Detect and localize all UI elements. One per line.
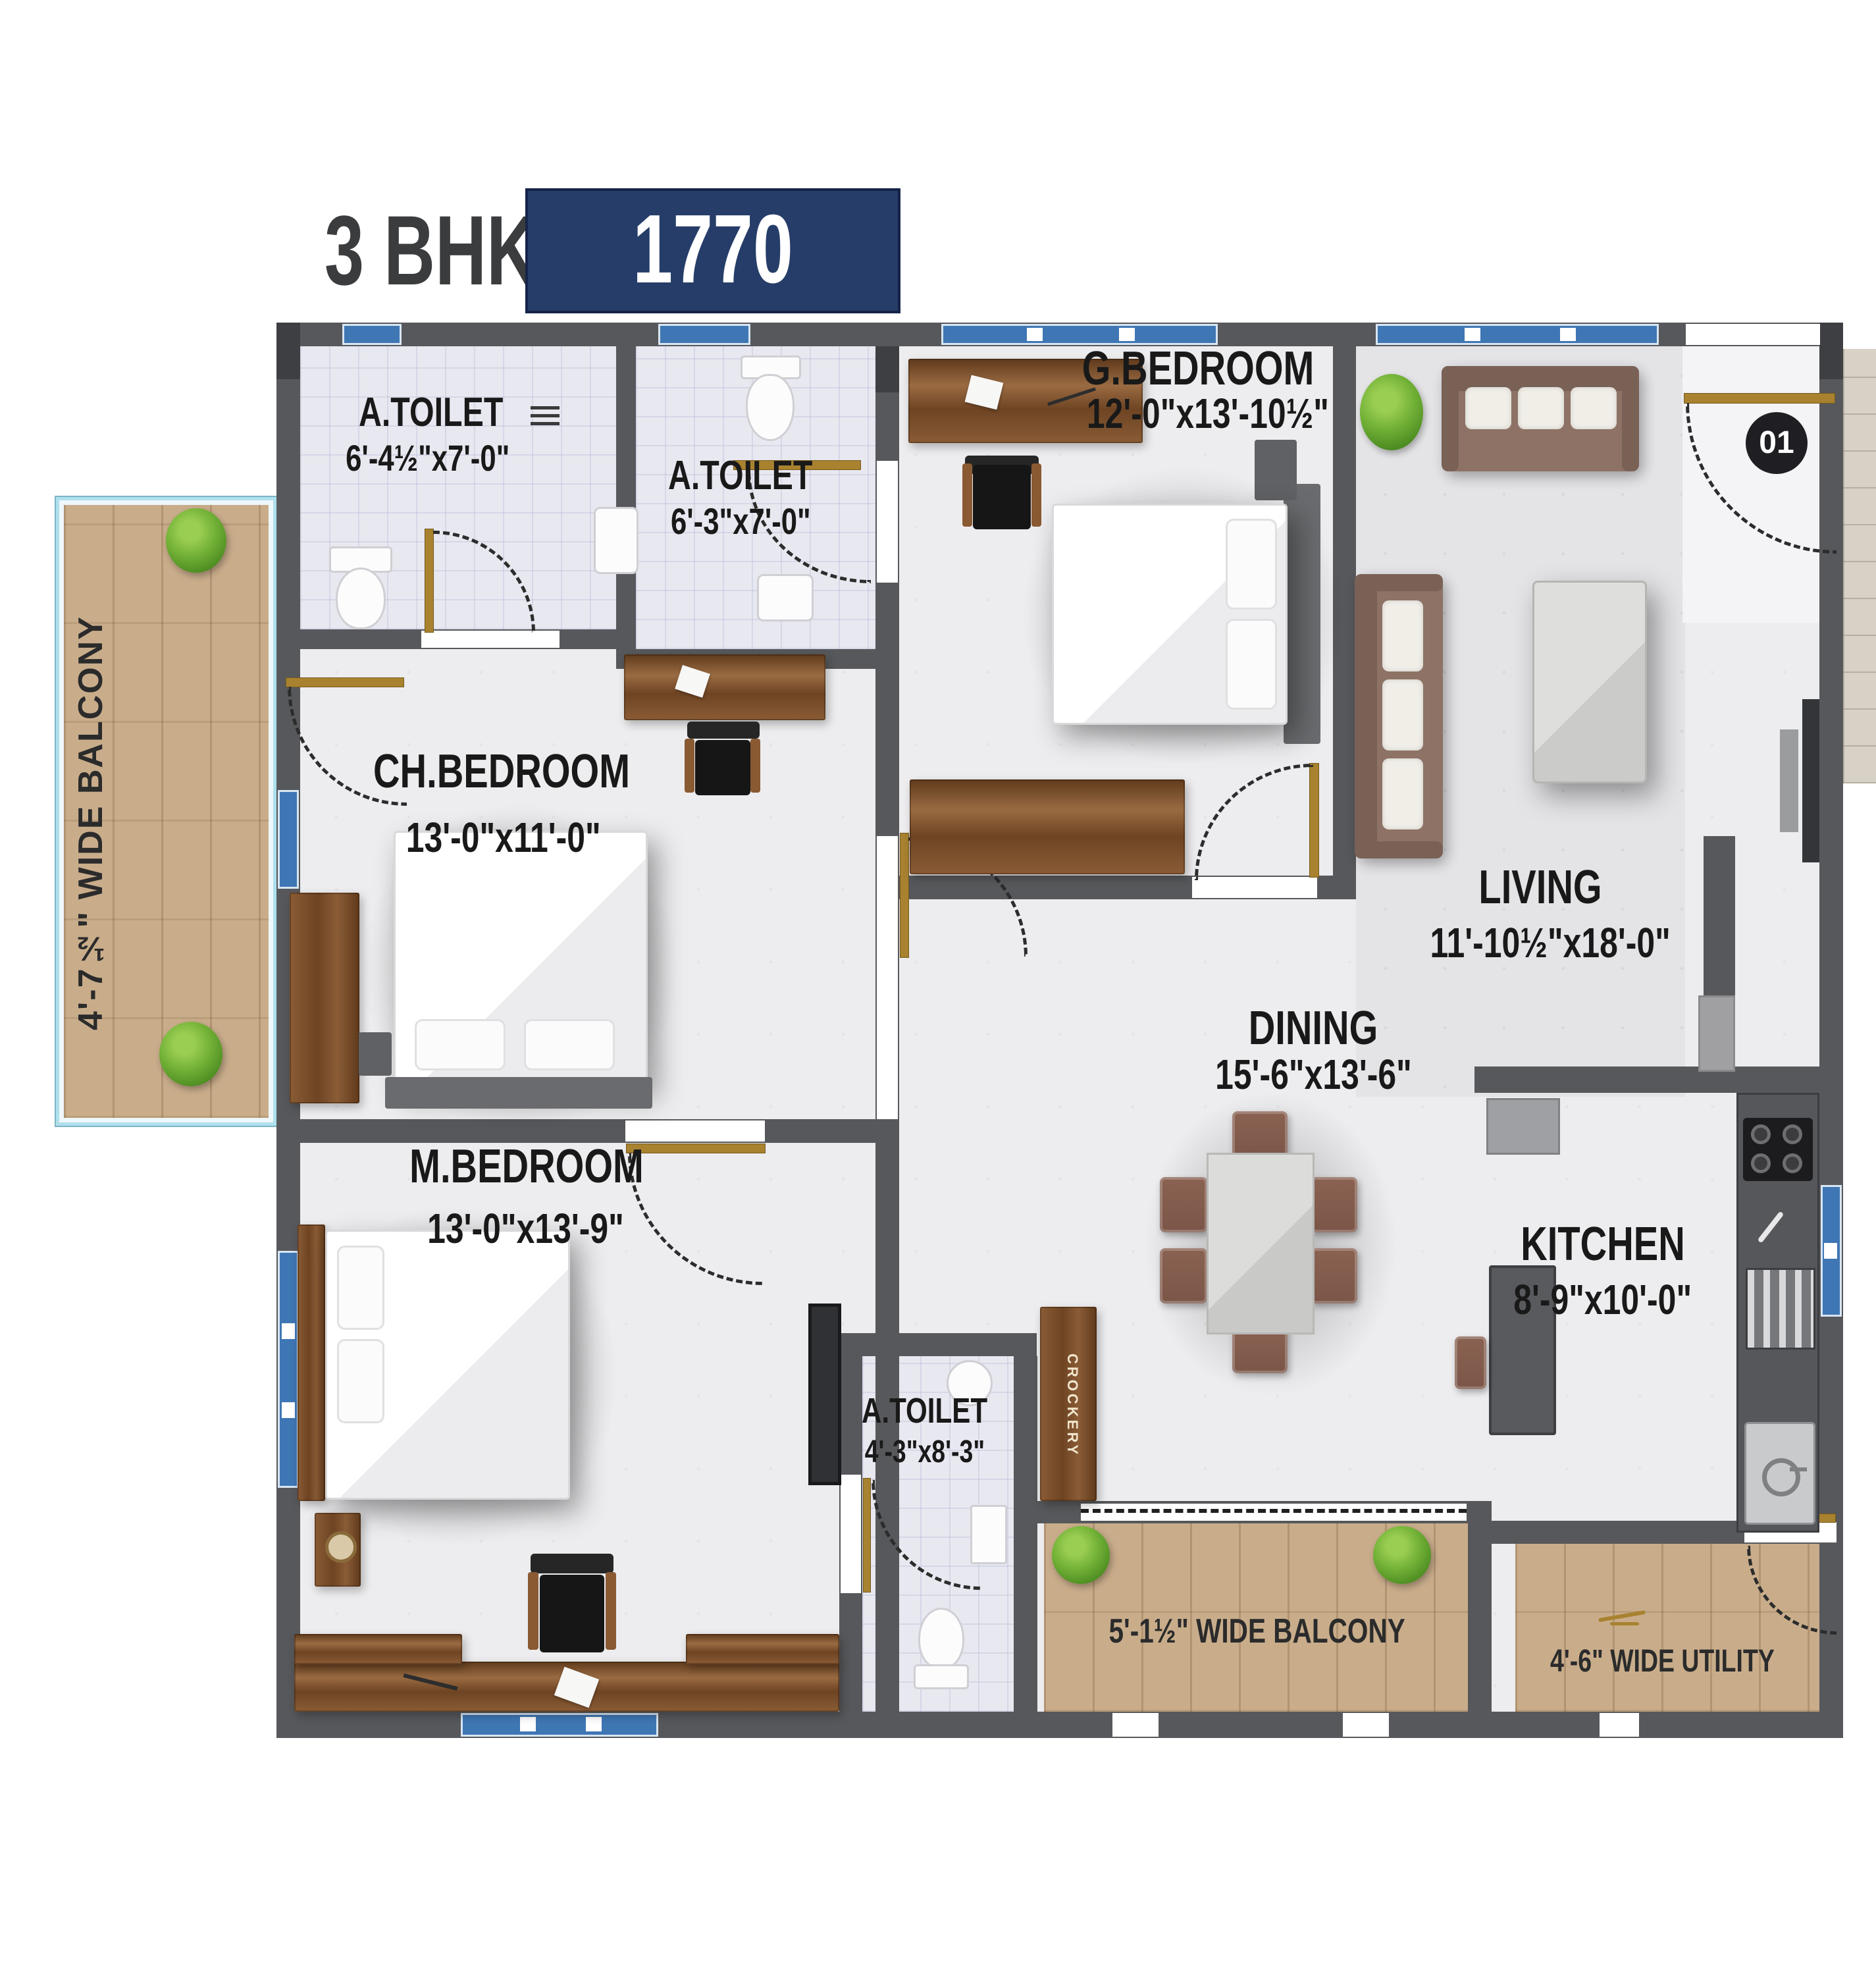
- window-pane: [1119, 328, 1135, 341]
- wardrobe: [290, 893, 359, 1103]
- burner-icon: [1751, 1153, 1771, 1173]
- room-label: DINING: [1149, 1005, 1478, 1052]
- balcony-label: 5'-1½" WIDE BALCONY: [1053, 1612, 1461, 1651]
- room-label: KITCHEN: [1438, 1221, 1767, 1268]
- toilet1-door-leaf: [425, 529, 433, 632]
- room-label: M.BEDROOM: [362, 1143, 691, 1190]
- window-pane: [1465, 328, 1480, 341]
- room-label: G.BEDROOM: [1033, 345, 1363, 392]
- window-pane: [586, 1717, 602, 1731]
- sofa-cushion: [1382, 600, 1423, 671]
- office-chair: [687, 722, 760, 739]
- page-title-bhk: 3 BHK: [283, 194, 500, 306]
- room-label: A.TOILET: [267, 392, 596, 433]
- room-dims: 8'-9"x10'-0": [1438, 1278, 1767, 1321]
- room-dims: 13'-0"x13'-9": [361, 1207, 690, 1250]
- wall: [1468, 1501, 1492, 1712]
- room-label: A.TOILET: [767, 1390, 1083, 1431]
- railing-gap: [1112, 1713, 1159, 1737]
- wardrobe: [624, 654, 825, 720]
- tv-unit: [1802, 699, 1819, 862]
- faucet-icon: [1790, 1467, 1807, 1471]
- utility-label: 4'-6" WIDE UTILITY: [1501, 1643, 1823, 1679]
- pillow: [524, 1019, 615, 1070]
- railing-gap: [1600, 1713, 1639, 1737]
- room-dims: 12'-0"x13'-10½": [1043, 392, 1372, 434]
- chair-arm: [528, 1572, 538, 1650]
- plant-icon: [166, 508, 226, 573]
- dining-chair: [1310, 1248, 1357, 1303]
- office-chair: [540, 1575, 604, 1652]
- sofa-cushion: [1518, 387, 1564, 429]
- chair-arm: [685, 739, 694, 793]
- burner-icon: [1783, 1153, 1802, 1173]
- pillow: [415, 1019, 506, 1070]
- room-dims: 15'-6"x13'-6": [1149, 1053, 1478, 1095]
- shelf-icon: [970, 1505, 1007, 1564]
- washbasin-icon: [757, 574, 814, 621]
- bed-headboard: [385, 1077, 652, 1109]
- cabinet: [1698, 995, 1735, 1072]
- room-dims: 11'-10½"x18'-0": [1386, 922, 1715, 964]
- unit-number-badge: 01: [1746, 412, 1808, 474]
- wall-cap: [1819, 323, 1843, 379]
- room-dims: 13'-0"x11'-0": [339, 816, 668, 858]
- wardrobe: [910, 779, 1185, 874]
- window-pane: [1560, 328, 1576, 341]
- sofa-cushion: [1382, 758, 1423, 829]
- corridor-tiles: [1843, 349, 1876, 783]
- burner-icon: [1751, 1124, 1771, 1144]
- sink-basin-icon: [1762, 1458, 1800, 1496]
- pipe-icon: [1610, 1622, 1639, 1625]
- window: [1821, 1185, 1842, 1317]
- room-label: CH.BEDROOM: [337, 748, 666, 795]
- dining-chair: [1310, 1177, 1357, 1232]
- sofa-arm: [1355, 841, 1443, 858]
- window: [342, 324, 402, 345]
- bed-headboard: [1284, 484, 1320, 744]
- sofa-cushion: [1465, 387, 1511, 429]
- pillow: [1226, 619, 1277, 710]
- sliding-door: [1081, 1509, 1467, 1513]
- desk: [686, 1634, 839, 1664]
- toilet-commode-icon: [746, 374, 795, 441]
- floor-plan: 3 BHK 1770 SFT 4'-7½" WIDE BALCONY: [0, 0, 1876, 1975]
- bed-headboard: [298, 1224, 325, 1501]
- window: [658, 324, 750, 345]
- lamp-icon: [325, 1531, 357, 1563]
- passage-door-leaf: [900, 833, 908, 957]
- toilet-commode-icon: [918, 1608, 964, 1670]
- burner-icon: [1783, 1124, 1802, 1144]
- wall: [1704, 836, 1735, 995]
- room-label: LIVING: [1376, 864, 1705, 911]
- sofa-cushion: [1571, 387, 1617, 429]
- stool: [1455, 1336, 1486, 1389]
- wall: [839, 1333, 1037, 1356]
- passage-opening: [877, 836, 898, 1119]
- plant-icon: [159, 1022, 222, 1086]
- room-dims: 4'-3"x8'-3": [767, 1434, 1083, 1470]
- sink-icon: [1744, 1422, 1815, 1525]
- toilet-commode-icon: [336, 567, 386, 629]
- wall-cap: [875, 346, 899, 392]
- ch-bedroom-door-leaf: [286, 678, 404, 687]
- room-dims: 6'-3"x7'-0": [576, 503, 905, 540]
- room-dims: 6'-4½"x7'-0": [263, 440, 592, 477]
- sofa-arm: [1622, 366, 1639, 471]
- room-label: A.TOILET: [576, 456, 905, 496]
- nightstand: [1255, 440, 1297, 500]
- window: [278, 790, 299, 889]
- door-opening: [1686, 324, 1820, 345]
- sofa-arm: [1442, 366, 1459, 471]
- left-balcony-label: 4'-7½" WIDE BALCONY: [71, 612, 132, 1034]
- sofa-cushion: [1382, 679, 1423, 750]
- wall: [616, 346, 636, 649]
- window-pane: [1027, 328, 1043, 341]
- dining-chair: [1232, 1111, 1288, 1157]
- dining-chair: [1160, 1177, 1207, 1232]
- door-opening: [841, 1475, 861, 1593]
- wall-cap: [276, 323, 300, 379]
- sofa-arm: [1355, 574, 1443, 591]
- wall: [1474, 1066, 1843, 1093]
- chair-arm: [750, 739, 760, 793]
- window-pane: [1824, 1243, 1837, 1259]
- stove-icon: [1743, 1118, 1813, 1181]
- entry-door-leaf: [1684, 394, 1835, 403]
- nightstand: [359, 1032, 392, 1076]
- railing-gap: [1343, 1713, 1389, 1737]
- dining-table: [1207, 1153, 1315, 1334]
- window: [461, 1713, 658, 1737]
- door-opening: [421, 631, 560, 648]
- plant-icon: [1373, 1526, 1431, 1584]
- chair-arm: [962, 463, 972, 527]
- area-badge: 1770 SFT: [525, 188, 900, 313]
- office-chair: [695, 740, 750, 795]
- kitchen-cabinet: [1486, 1098, 1560, 1155]
- window: [1376, 324, 1659, 345]
- pillow: [337, 1246, 384, 1330]
- window-pane: [520, 1717, 536, 1731]
- pillow: [337, 1339, 384, 1423]
- office-chair: [531, 1554, 613, 1573]
- coffee-table: [1532, 581, 1647, 783]
- chair-arm: [606, 1572, 616, 1650]
- desk: [294, 1634, 462, 1664]
- dining-chair: [1160, 1248, 1207, 1303]
- sofa-back: [1355, 574, 1377, 858]
- pillow: [1226, 519, 1277, 610]
- toilet3-door-leaf: [864, 1479, 870, 1592]
- tv-console: [1780, 729, 1798, 832]
- toilet-commode-icon: [914, 1664, 969, 1689]
- plant-icon: [1052, 1526, 1110, 1584]
